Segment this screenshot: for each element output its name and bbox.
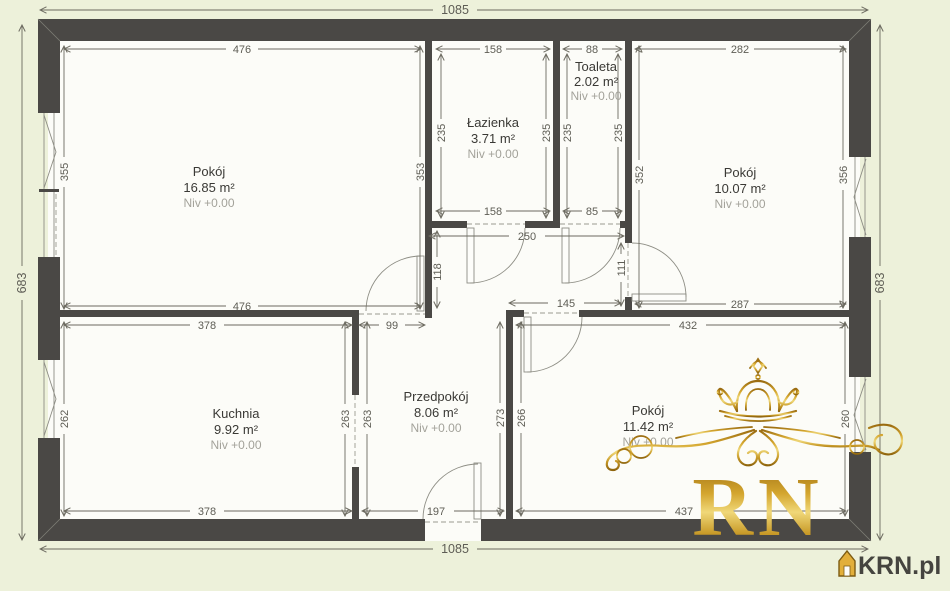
- dim-toa-left: 235: [562, 124, 574, 142]
- dim-p1-left: 355: [59, 163, 71, 181]
- dim-left-total: 683: [15, 273, 29, 294]
- dim-laz-top: 158: [484, 44, 502, 56]
- room-area: 8.06 m²: [414, 405, 459, 420]
- floor-plan: 1085 1085 683 683 476 476 355 353 158 23…: [0, 0, 950, 591]
- room-level: Niv +0.00: [410, 421, 461, 435]
- house-icon: [839, 551, 855, 576]
- room-level: Niv +0.00: [570, 89, 621, 103]
- room-name: Kuchnia: [213, 406, 261, 421]
- dim-corridor: 250: [518, 231, 536, 243]
- dim-corr-left: 118: [432, 263, 444, 281]
- room-area: 3.71 m²: [471, 131, 516, 146]
- room-label-toaleta: Toaleta 2.02 m² Niv +0.00: [570, 59, 621, 103]
- dim-p2-top: 282: [731, 44, 749, 56]
- dim-prz-right: 266: [516, 409, 528, 427]
- room-area: 16.85 m²: [183, 180, 235, 195]
- rn-logo-text: RN: [692, 461, 823, 554]
- room-level: Niv +0.00: [714, 197, 765, 211]
- dim-toa-top: 88: [586, 44, 598, 56]
- dim-prz-bottom: 197: [427, 506, 445, 518]
- room-area: 2.02 m²: [574, 74, 619, 89]
- dim-p2-right: 356: [838, 166, 850, 184]
- dim-laz-bottom: 158: [484, 206, 502, 218]
- room-area: 11.42 m²: [623, 419, 674, 434]
- dim-p1-top: 476: [233, 44, 251, 56]
- dim-p1-bottom: 476: [233, 301, 251, 313]
- room-level: Niv +0.00: [467, 147, 518, 161]
- room-area: 10.07 m²: [714, 181, 766, 196]
- dim-prz-left: 273: [495, 409, 507, 427]
- dim-kuch-bottom: 378: [198, 506, 216, 518]
- dim-laz-right: 235: [541, 124, 553, 142]
- krn-watermark[interactable]: KRN.pl: [839, 551, 941, 580]
- dim-p1-right: 353: [415, 163, 427, 181]
- dim-kuch-wall-left: 263: [340, 410, 352, 428]
- room-level: Niv +0.00: [210, 438, 261, 452]
- room-name: Pokój: [724, 165, 757, 180]
- room-area: 9.92 m²: [214, 422, 259, 437]
- dim-laz-left: 235: [436, 124, 448, 142]
- dim-toa-bottom: 85: [586, 206, 598, 218]
- room-level: Niv +0.00: [183, 196, 234, 210]
- dim-p3-right: 260: [840, 410, 852, 428]
- dim-p2-door: 111: [616, 260, 628, 277]
- krn-site-label: KRN.pl: [858, 552, 941, 580]
- room-name: Łazienka: [467, 115, 520, 130]
- room-label-lazienka: Łazienka 3.71 m² Niv +0.00: [467, 115, 520, 161]
- room-name: Toaleta: [575, 59, 618, 74]
- floor-plan-page: 1085 1085 683 683 476 476 355 353 158 23…: [0, 0, 950, 591]
- room-name: Przedpokój: [403, 389, 468, 404]
- dim-toa-right: 235: [613, 124, 625, 142]
- dim-bottom-total: 1085: [441, 542, 469, 556]
- dim-right-total: 683: [873, 273, 887, 294]
- dim-passage: 145: [557, 298, 575, 310]
- dim-top-total: 1085: [441, 3, 469, 17]
- dim-kuch-top: 378: [198, 320, 216, 332]
- dim-p3-top: 432: [679, 320, 697, 332]
- dim-kuch-left: 262: [59, 410, 71, 428]
- dim-kuch-wall-right: 263: [362, 410, 374, 428]
- dim-p2-left: 352: [634, 166, 646, 184]
- room-label-kuchnia: Kuchnia 9.92 m² Niv +0.00: [210, 406, 261, 452]
- room-name: Pokój: [193, 164, 226, 179]
- dim-p3-bottom: 437: [675, 506, 693, 518]
- dim-p2-bottom: 287: [731, 299, 749, 311]
- room-name: Pokój: [632, 403, 665, 418]
- dim-p1-door: 99: [386, 320, 398, 332]
